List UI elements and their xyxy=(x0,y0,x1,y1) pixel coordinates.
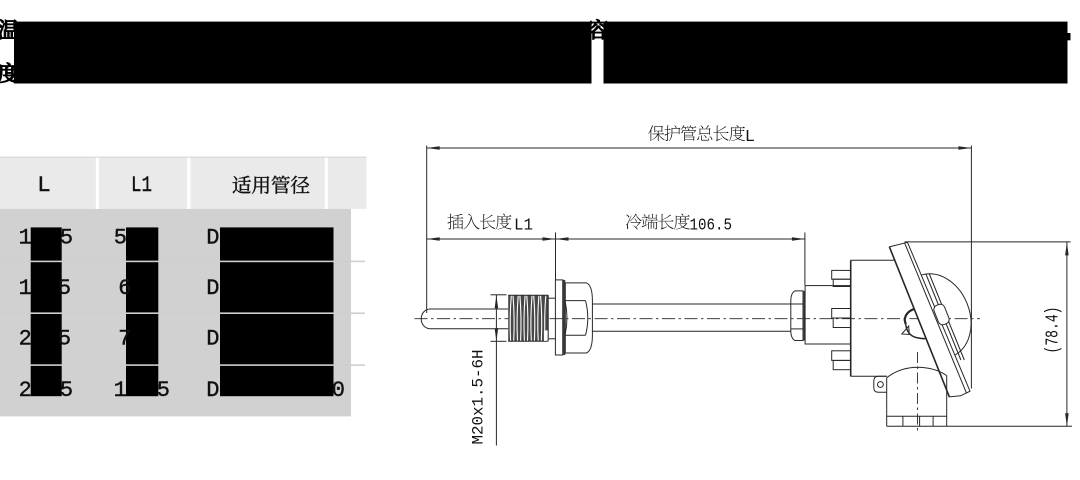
svg-text:D: D xyxy=(206,378,219,403)
svg-text:5: 5 xyxy=(114,226,127,251)
svg-text:5: 5 xyxy=(60,226,73,251)
svg-text:L1: L1 xyxy=(514,217,533,236)
svg-text:2: 2 xyxy=(19,327,32,352)
svg-text:L: L xyxy=(37,172,51,198)
svg-text:7: 7 xyxy=(118,327,131,352)
svg-text:(78.4): (78.4) xyxy=(1044,307,1064,354)
svg-text:5: 5 xyxy=(157,378,170,403)
svg-text:1: 1 xyxy=(19,276,32,301)
svg-text:D: D xyxy=(206,327,219,352)
svg-text:5: 5 xyxy=(60,378,73,403)
svg-text:1: 1 xyxy=(19,226,32,251)
svg-text:106.5: 106.5 xyxy=(690,217,733,236)
svg-text:6: 6 xyxy=(118,276,131,301)
svg-text:0: 0 xyxy=(332,378,345,403)
svg-text:1: 1 xyxy=(114,378,127,403)
svg-text:D: D xyxy=(206,226,219,251)
svg-text:D: D xyxy=(206,276,219,301)
svg-text:M20x1.5-6H: M20x1.5-6H xyxy=(469,350,487,445)
svg-text:5: 5 xyxy=(58,276,71,301)
svg-text:2: 2 xyxy=(19,378,32,403)
svg-text:L1: L1 xyxy=(131,172,152,198)
svg-text:L: L xyxy=(745,128,755,147)
svg-text:5: 5 xyxy=(58,327,71,352)
